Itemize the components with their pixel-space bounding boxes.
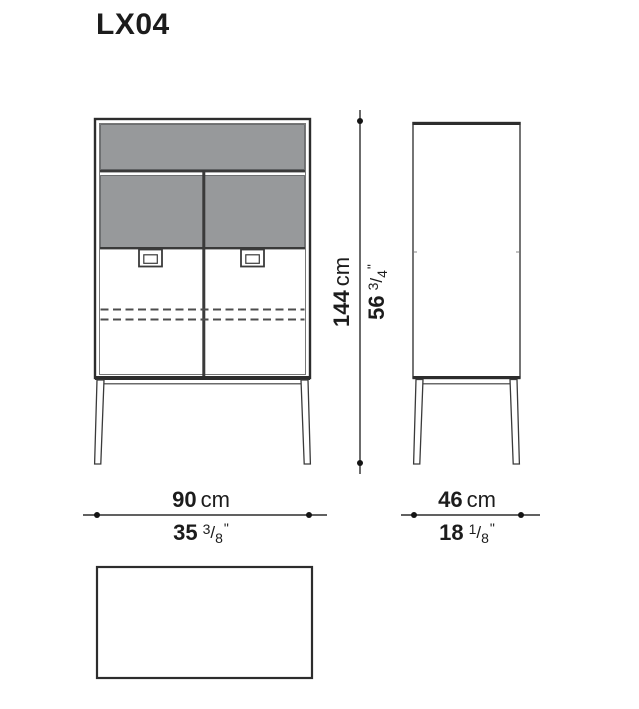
- depth-dimension-label-metric: 46cm: [438, 489, 496, 511]
- width-dim-dot-right: [306, 512, 312, 518]
- product-title: LX04: [96, 10, 170, 40]
- width-dimension-label-imperial: 353/8": [173, 522, 229, 544]
- height-imperial-fraction: 3/4: [371, 270, 387, 290]
- width-dim-dot-left: [94, 512, 100, 518]
- width-metric-value: 90: [172, 487, 196, 512]
- height-imperial-whole: 56: [364, 295, 389, 319]
- top-view: [97, 567, 312, 678]
- depth-inch-mark: ": [490, 520, 495, 536]
- width-metric-unit: cm: [201, 487, 230, 512]
- depth-dim-dot-right: [518, 512, 524, 518]
- depth-metric-value: 46: [438, 487, 462, 512]
- height-inch-mark: ": [364, 264, 380, 269]
- height-dimension-line: [357, 110, 363, 474]
- handle-right: [241, 250, 264, 267]
- width-imperial-whole: 35: [173, 520, 197, 545]
- depth-metric-unit: cm: [467, 487, 496, 512]
- height-metric-unit: cm: [329, 257, 354, 286]
- width-inch-mark: ": [224, 520, 229, 536]
- width-imperial-fraction: 3/8: [203, 527, 223, 543]
- side-bottom-edge: [413, 376, 521, 379]
- side-view: [412, 123, 520, 465]
- top-view-outline: [97, 567, 312, 678]
- depth-dimension-label-imperial: 181/8": [439, 522, 495, 544]
- depth-dim-dot-left: [411, 512, 417, 518]
- depth-imperial-whole: 18: [439, 520, 463, 545]
- handle-left: [139, 250, 162, 267]
- side-leg-left: [414, 380, 423, 465]
- height-dim-dot-top: [357, 118, 363, 124]
- technical-drawing: [0, 0, 639, 709]
- width-dimension-label-metric: 90cm: [172, 489, 230, 511]
- handle-left-inner: [144, 255, 158, 263]
- product-sheet: LX04 144cm 563/4" 90cm 353/8" 46cm 181/8…: [0, 0, 639, 709]
- handle-right-inner: [246, 255, 259, 263]
- front-leg-right: [301, 380, 310, 464]
- side-view-outline: [413, 123, 520, 379]
- door-divider: [202, 170, 205, 378]
- front-bottom-edge: [95, 376, 310, 380]
- drawer-front-panel: [101, 125, 305, 170]
- height-metric-value: 144: [329, 290, 354, 327]
- height-dimension-label-metric: 144cm: [331, 257, 353, 327]
- height-dim-dot-bottom: [357, 460, 363, 466]
- depth-imperial-fraction: 1/8: [469, 527, 489, 543]
- side-leg-right: [510, 380, 519, 465]
- height-dimension-label-imperial: 563/4": [366, 264, 388, 320]
- front-view: [95, 119, 311, 464]
- width-dimension-line: [83, 512, 327, 518]
- depth-dimension-line: [401, 512, 540, 518]
- front-leg-left: [95, 380, 104, 464]
